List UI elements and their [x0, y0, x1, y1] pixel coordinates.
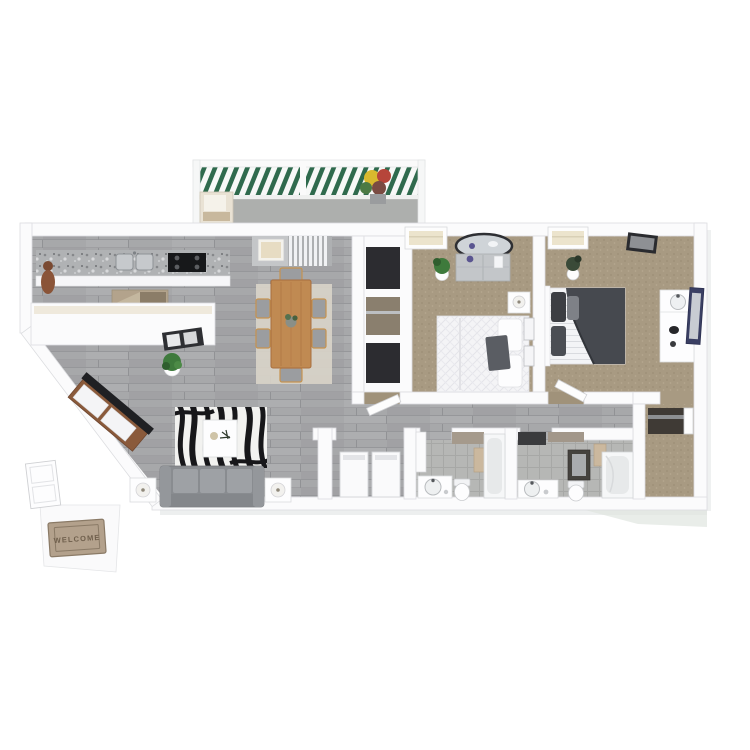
cabinet-face	[36, 276, 230, 286]
bath2-bathtub-icon	[602, 452, 633, 498]
end-table-lamp-right	[265, 478, 291, 502]
bedroom2-window	[548, 227, 588, 249]
headboard	[545, 286, 550, 366]
bath2-wall-tile	[548, 432, 584, 442]
bath1-towels	[474, 448, 485, 472]
dining-table	[271, 280, 311, 368]
closet-shelf	[366, 311, 400, 314]
wall-laundry-east	[404, 428, 416, 499]
bath1-wall-tile	[452, 432, 484, 444]
railing-post-left	[193, 160, 200, 224]
wall-closet-west	[633, 404, 645, 499]
railing-post-mid	[300, 162, 306, 196]
bath2-toilet-icon	[568, 481, 584, 501]
wall-laundry-west	[318, 428, 332, 499]
washer-panel	[343, 455, 365, 460]
bath1-bathtub-icon	[484, 434, 505, 498]
floor-plan-image: WELCOME	[0, 0, 750, 750]
balcony-lounge-chair	[200, 192, 233, 223]
faucet	[530, 481, 533, 484]
pillow-dark	[551, 326, 566, 356]
wall-sculpture	[41, 261, 55, 294]
closet-door-threshold	[660, 392, 694, 404]
wall-west	[20, 223, 32, 333]
railing-top-rail	[193, 160, 425, 167]
corner-shadow	[585, 510, 707, 527]
front-door-leaf	[25, 460, 60, 508]
closet-door-leaf	[684, 408, 693, 434]
seat-cushion	[227, 469, 252, 493]
bar-countertop	[34, 306, 212, 314]
entry: WELCOME	[25, 460, 120, 572]
closet-niche-bottom	[366, 343, 400, 383]
vertical-blinds	[288, 236, 332, 266]
closet-niche-top	[366, 247, 400, 289]
closet-shelf-board	[648, 415, 688, 419]
dining-area	[256, 268, 332, 384]
walk-in-closet	[648, 408, 693, 434]
faucet	[431, 479, 434, 482]
closet-shelf-unit	[648, 408, 688, 434]
railing-post-right	[418, 160, 425, 224]
coffee-table	[203, 420, 237, 457]
range-cooktop	[168, 253, 206, 272]
table-decor	[210, 432, 218, 440]
pillow-gray	[567, 296, 579, 320]
hall-closets	[366, 247, 400, 383]
wall-bedroom-divider	[533, 236, 545, 392]
bed-charcoal	[545, 286, 625, 366]
pillow-dark	[551, 292, 566, 322]
dining-wall-art	[258, 239, 284, 261]
bath2-medicine-cabinet	[568, 450, 590, 480]
end-table-lamp-left	[130, 478, 156, 502]
wall-dining-east	[352, 236, 364, 392]
bath2-counter-dark	[518, 432, 546, 445]
dresser	[456, 254, 510, 281]
bath1-toilet-icon	[454, 479, 470, 501]
sofa-arm-left	[160, 466, 171, 507]
seat-cushion	[173, 469, 198, 493]
seat-cushion	[200, 469, 225, 493]
accent-pillow	[485, 335, 510, 371]
wall-bath-divider	[505, 428, 517, 499]
bath1-vanity-sink	[418, 476, 452, 498]
dryer-panel	[375, 455, 397, 460]
sofa-arm-right	[253, 466, 264, 507]
right-shadow	[707, 230, 711, 511]
wall-bedrooms-south-1	[400, 392, 548, 404]
balcony	[193, 160, 425, 225]
sofa-back	[171, 494, 253, 506]
wall-north	[25, 223, 705, 236]
wall-seg-a	[352, 392, 364, 404]
nightstand-lamp	[508, 292, 530, 313]
bath2-vanity-sink	[518, 480, 558, 498]
wall-bedrooms-south-2	[584, 392, 633, 404]
dresser-decor	[467, 256, 474, 263]
floor-plan-svg: WELCOME	[0, 0, 750, 750]
bedroom2-wall-art	[626, 232, 658, 254]
bath1-door-leaf	[416, 432, 426, 472]
faucet	[676, 294, 680, 298]
welcome-mat: WELCOME	[48, 519, 106, 557]
bed-white	[437, 316, 529, 392]
wall-bedrooms-south-3	[633, 392, 660, 404]
wall-east	[694, 223, 707, 510]
sofa	[160, 466, 264, 507]
floor-plant	[162, 353, 182, 376]
closet-niche-mid	[366, 297, 400, 335]
bedroom1-window	[405, 227, 447, 249]
